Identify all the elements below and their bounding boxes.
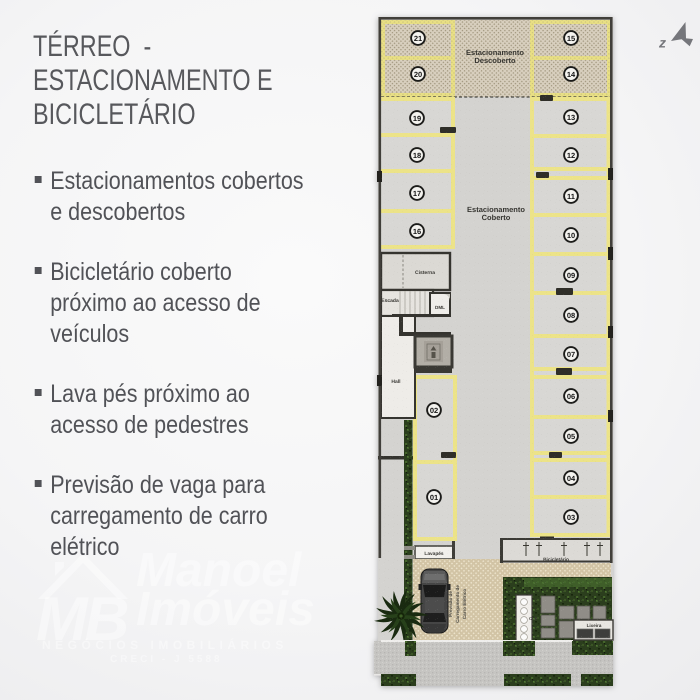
svg-text:NEGÓCIOS IMOBILIÁRIOS: NEGÓCIOS IMOBILIÁRIOS: [42, 638, 288, 652]
svg-text:CRECI - J 5588: CRECI - J 5588: [110, 654, 223, 665]
svg-text:z: z: [658, 35, 666, 51]
svg-text:Imóveis: Imóveis: [136, 583, 315, 636]
